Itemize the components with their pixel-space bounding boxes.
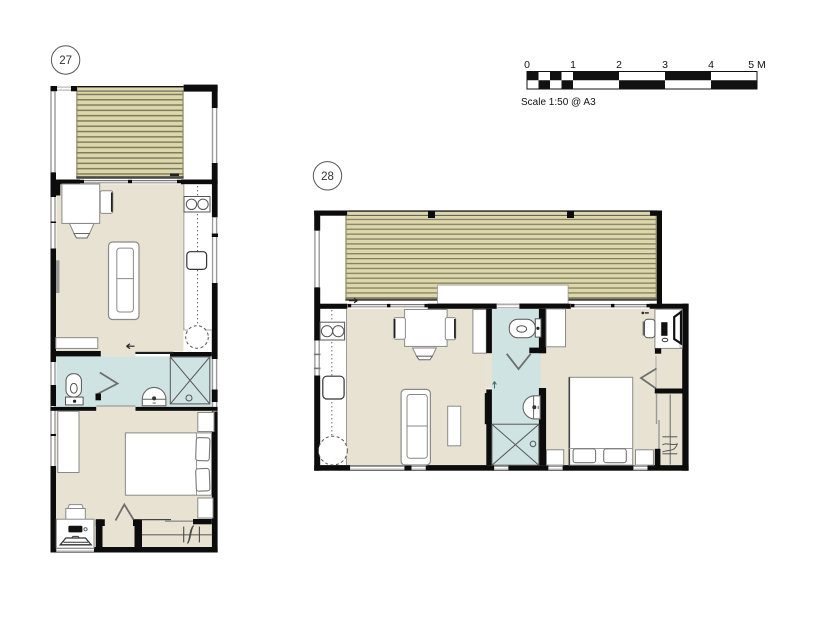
svg-text:2: 2 (616, 59, 622, 71)
svg-text:28: 28 (321, 171, 334, 183)
svg-text:Scale 1:50 @ A3: Scale 1:50 @ A3 (521, 97, 596, 108)
svg-text:4: 4 (708, 59, 714, 71)
svg-text:3: 3 (662, 59, 668, 71)
svg-text:1: 1 (570, 59, 576, 71)
svg-text:5 M: 5 M (748, 59, 766, 71)
svg-text:0: 0 (524, 59, 530, 71)
svg-text:27: 27 (59, 55, 72, 67)
